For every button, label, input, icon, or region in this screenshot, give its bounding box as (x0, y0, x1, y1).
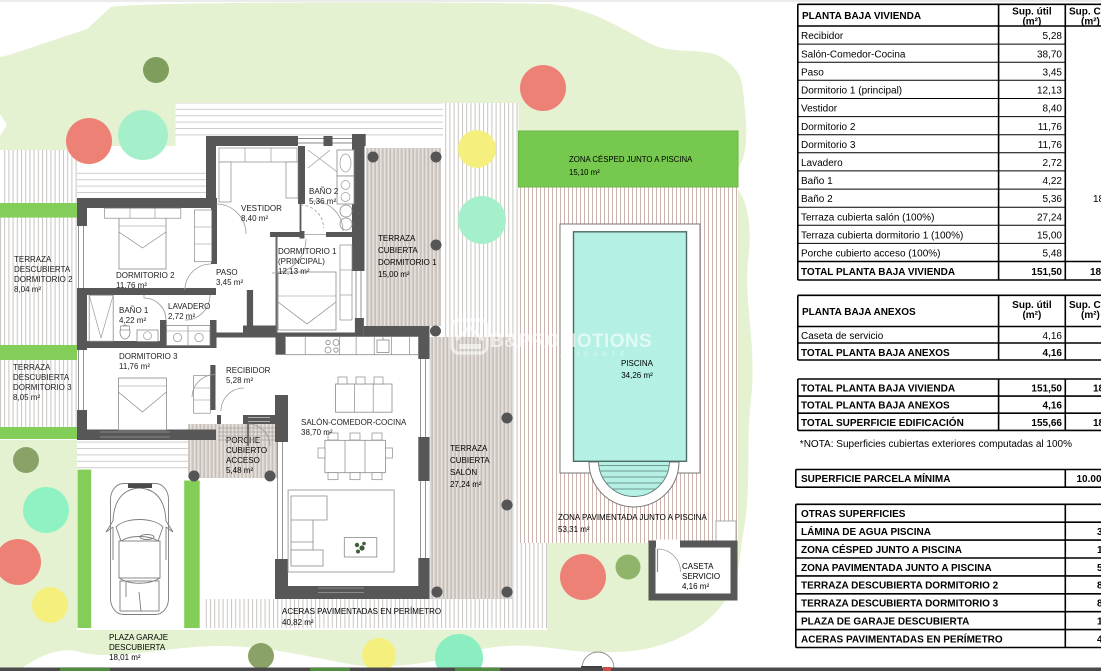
svg-text:PLANTA BAJA ANEXOS: PLANTA BAJA ANEXOS (802, 307, 916, 318)
svg-text:11,76 m²: 11,76 m² (116, 281, 147, 290)
svg-text:3: 3 (1097, 527, 1101, 538)
svg-text:53,31 m²: 53,31 m² (558, 525, 590, 534)
svg-text:DORMITORIO 3: DORMITORIO 3 (13, 383, 72, 392)
svg-text:ALICANTE: ALICANTE (560, 352, 629, 358)
svg-text:B&PROMOTIONS: B&PROMOTIONS (490, 331, 652, 352)
svg-text:DORMITORIO 1: DORMITORIO 1 (278, 247, 337, 256)
svg-text:SUPERFICIE PARCELA MÍNIMA: SUPERFICIE PARCELA MÍNIMA (801, 472, 950, 485)
svg-text:Lavadero: Lavadero (801, 158, 843, 169)
svg-text:8,40: 8,40 (1043, 104, 1063, 115)
svg-text:DESCUBIERTA: DESCUBIERTA (14, 265, 71, 274)
svg-text:DORMITORIO 3: DORMITORIO 3 (119, 352, 178, 361)
svg-text:ACERAS PAVIMENTADAS EN PERÍMET: ACERAS PAVIMENTADAS EN PERÍMETRO (282, 607, 441, 616)
svg-text:PASO: PASO (216, 268, 238, 277)
svg-text:151,50: 151,50 (1031, 267, 1062, 278)
svg-text:11,76: 11,76 (1038, 140, 1063, 151)
svg-text:ZONA PAVIMENTADA JUNTO A PISCI: ZONA PAVIMENTADA JUNTO A PISCINA (558, 513, 707, 522)
svg-text:OTRAS SUPERFICIES: OTRAS SUPERFICIES (801, 509, 906, 520)
svg-text:5,28 m²: 5,28 m² (226, 376, 253, 385)
svg-text:4,16: 4,16 (1043, 401, 1063, 412)
svg-text:CUBIERTA: CUBIERTA (378, 246, 418, 255)
svg-text:Recibidor: Recibidor (801, 31, 844, 42)
svg-text:155,66: 155,66 (1031, 418, 1062, 429)
svg-text:Baño 1: Baño 1 (801, 176, 833, 187)
svg-text:ZONA PAVIMENTADA JUNTO A PISCI: ZONA PAVIMENTADA JUNTO A PISCINA (801, 563, 992, 574)
svg-text:Dormitorio 1 (principal): Dormitorio 1 (principal) (801, 86, 902, 97)
svg-text:TERRAZA: TERRAZA (378, 234, 416, 243)
svg-text:3,45: 3,45 (1043, 67, 1063, 78)
svg-text:5,28: 5,28 (1043, 31, 1063, 42)
svg-text:(m²): (m²) (1081, 310, 1100, 321)
svg-text:PISCINA: PISCINA (621, 359, 654, 368)
svg-text:4,22: 4,22 (1043, 176, 1063, 187)
svg-text:4,16: 4,16 (1043, 331, 1063, 342)
svg-text:TERRAZA: TERRAZA (13, 363, 51, 372)
svg-text:18: 18 (1093, 418, 1101, 429)
svg-text:15,00: 15,00 (1037, 231, 1062, 242)
svg-text:5,36 m²: 5,36 m² (309, 197, 336, 206)
svg-text:18,01 m²: 18,01 m² (109, 653, 141, 662)
svg-text:CUBIERTO: CUBIERTO (226, 446, 267, 455)
svg-text:Salón-Comedor-Cocina: Salón-Comedor-Cocina (801, 49, 906, 60)
svg-text:3,45 m²: 3,45 m² (216, 278, 243, 287)
svg-text:2,72 m²: 2,72 m² (168, 312, 195, 321)
svg-text:Terraza cubierta salón (100%): Terraza cubierta salón (100%) (801, 212, 934, 223)
svg-text:183: 183 (1090, 267, 1101, 278)
svg-text:*NOTA: Superficies cubiertas e: *NOTA: Superficies cubiertas exteriores … (800, 439, 1072, 450)
svg-text:(m²): (m²) (1081, 17, 1100, 28)
svg-text:TERRAZA DESCUBIERTA DORMITORIO: TERRAZA DESCUBIERTA DORMITORIO 3 (801, 599, 999, 610)
svg-text:TOTAL PLANTA BAJA ANEXOS: TOTAL PLANTA BAJA ANEXOS (801, 401, 950, 412)
svg-text:38,70: 38,70 (1037, 49, 1062, 60)
svg-text:SERVICIO: SERVICIO (682, 572, 720, 581)
svg-text:ZONA CÉSPED JUNTO A PISCINA: ZONA CÉSPED JUNTO A PISCINA (801, 543, 962, 556)
svg-text:ACCESO: ACCESO (226, 456, 260, 465)
svg-text:4,16 m²: 4,16 m² (682, 582, 709, 591)
svg-text:ZONA CÉSPED JUNTO A PISCINA: ZONA CÉSPED JUNTO A PISCINA (569, 155, 693, 164)
svg-text:5,48 m²: 5,48 m² (226, 466, 253, 475)
svg-text:12,13: 12,13 (1037, 86, 1062, 97)
svg-text:LÁMINA DE AGUA PISCINA: LÁMINA DE AGUA PISCINA (801, 525, 931, 538)
svg-text:TOTAL SUPERFICIE EDIFICACIÓN: TOTAL SUPERFICIE EDIFICACIÓN (801, 416, 964, 429)
svg-text:CUBIERTA: CUBIERTA (450, 456, 490, 465)
svg-text:TERRAZA: TERRAZA (14, 255, 52, 264)
svg-text:4,22 m²: 4,22 m² (119, 316, 146, 325)
svg-text:18: 18 (1093, 384, 1101, 395)
svg-text:TOTAL PLANTA BAJA ANEXOS: TOTAL PLANTA BAJA ANEXOS (801, 348, 950, 359)
svg-text:TERRAZA DESCUBIERTA DORMITORIO: TERRAZA DESCUBIERTA DORMITORIO 2 (801, 581, 999, 592)
svg-text:DORMITORIO 2: DORMITORIO 2 (116, 271, 175, 280)
svg-text:8: 8 (1097, 599, 1101, 610)
svg-text:34,26 m²: 34,26 m² (621, 371, 653, 380)
svg-text:1: 1 (1097, 545, 1101, 556)
svg-text:DORMITORIO 2: DORMITORIO 2 (14, 275, 73, 284)
svg-text:27,24: 27,24 (1037, 212, 1062, 223)
svg-text:RECIBIDOR: RECIBIDOR (226, 366, 271, 375)
svg-text:Baño 2: Baño 2 (801, 194, 833, 205)
svg-text:(m²): (m²) (1022, 310, 1041, 321)
svg-text:PORCHE: PORCHE (226, 436, 260, 445)
svg-text:12,13 m²: 12,13 m² (278, 267, 310, 276)
svg-text:TOTAL PLANTA BAJA VIVIENDA: TOTAL PLANTA BAJA VIVIENDA (801, 267, 955, 278)
svg-text:Dormitorio 3: Dormitorio 3 (801, 140, 856, 151)
svg-text:Porche cubierto acceso (100%): Porche cubierto acceso (100%) (801, 249, 941, 260)
svg-text:5,36: 5,36 (1043, 194, 1063, 205)
svg-text:2,72: 2,72 (1043, 158, 1063, 169)
svg-text:10.000: 10.000 (1077, 474, 1101, 485)
svg-text:11,76: 11,76 (1038, 122, 1063, 133)
svg-text:SALÓN-COMEDOR-COCINA: SALÓN-COMEDOR-COCINA (301, 418, 407, 427)
svg-text:ACERAS PAVIMENTADAS EN PERÍMET: ACERAS PAVIMENTADAS EN PERÍMETRO (801, 632, 1003, 645)
svg-text:1: 1 (1097, 617, 1101, 628)
svg-text:8,05 m²: 8,05 m² (13, 393, 40, 402)
svg-text:40,82 m²: 40,82 m² (282, 618, 314, 627)
svg-text:8,40 m²: 8,40 m² (241, 214, 268, 223)
svg-text:151,50: 151,50 (1031, 384, 1062, 395)
svg-text:5,48: 5,48 (1043, 249, 1063, 260)
svg-text:TERRAZA: TERRAZA (450, 444, 488, 453)
svg-text:BAÑO 1: BAÑO 1 (119, 306, 149, 315)
svg-text:DESCUBIERTA: DESCUBIERTA (109, 643, 166, 652)
svg-text:8: 8 (1097, 581, 1101, 592)
svg-text:CASETA: CASETA (682, 562, 714, 571)
svg-text:183,43: 183,43 (1093, 194, 1101, 205)
svg-text:(m²): (m²) (1022, 17, 1041, 28)
svg-text:VESTIDOR: VESTIDOR (241, 204, 282, 213)
svg-text:BAÑO 2: BAÑO 2 (309, 187, 339, 196)
svg-text:27,24 m²: 27,24 m² (450, 480, 482, 489)
svg-text:15,10 m²: 15,10 m² (569, 168, 600, 177)
svg-text:SALÓN: SALÓN (450, 468, 477, 477)
svg-text:Terraza cubierta dormitorio 1: Terraza cubierta dormitorio 1 (100%) (801, 231, 963, 242)
svg-text:PLAZA GARAJE: PLAZA GARAJE (109, 633, 168, 642)
svg-text:LAVADERO: LAVADERO (168, 302, 210, 311)
svg-text:PLAZA DE GARAJE DESCUBIERTA: PLAZA DE GARAJE DESCUBIERTA (801, 617, 969, 628)
svg-text:Paso: Paso (801, 67, 824, 78)
svg-text:11,76 m²: 11,76 m² (119, 362, 150, 371)
svg-text:Dormitorio 2: Dormitorio 2 (801, 122, 856, 133)
svg-text:DORMITORIO 1: DORMITORIO 1 (378, 258, 437, 267)
svg-text:38,70 m²: 38,70 m² (301, 428, 333, 437)
svg-text:5: 5 (1097, 563, 1101, 574)
svg-text:DESCUBIERTA: DESCUBIERTA (13, 373, 70, 382)
svg-text:Vestidor: Vestidor (801, 104, 838, 115)
svg-text:8,04 m²: 8,04 m² (14, 285, 41, 294)
svg-text:TOTAL PLANTA BAJA VIVIENDA: TOTAL PLANTA BAJA VIVIENDA (801, 384, 955, 395)
svg-text:(PRINCIPAL): (PRINCIPAL) (278, 257, 325, 266)
svg-text:PLANTA BAJA VIVIENDA: PLANTA BAJA VIVIENDA (802, 11, 921, 22)
svg-text:4,16: 4,16 (1043, 348, 1063, 359)
svg-text:Caseta de servicio: Caseta de servicio (801, 331, 884, 342)
svg-text:15,00 m²: 15,00 m² (378, 270, 410, 279)
svg-text:4: 4 (1097, 634, 1101, 645)
